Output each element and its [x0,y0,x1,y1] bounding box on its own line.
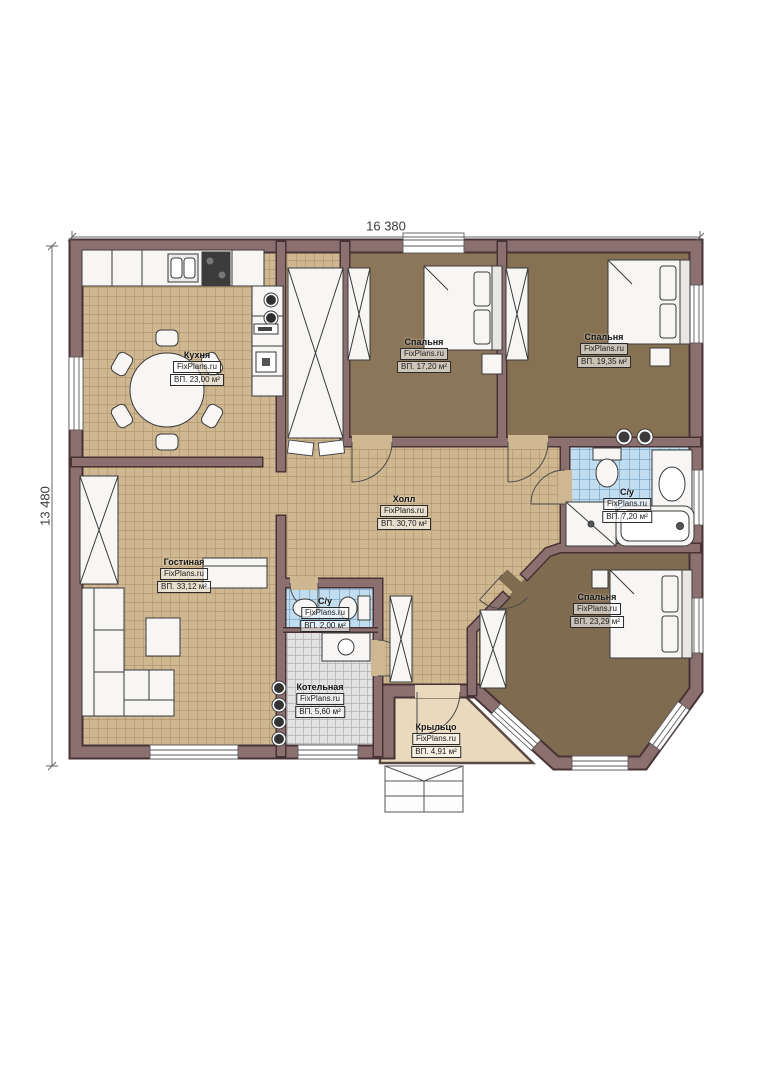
room-name: Спальня [578,592,617,602]
watermark-box: FixPlans.ru [296,693,344,705]
room-label-hall: Холл FixPlans.ru ВП. 30,70 м² [377,494,431,530]
room-label-bedroom3: Спальня FixPlans.ru ВП. 23,29 м² [570,592,624,628]
hall-wardrobe [288,268,343,438]
stove-icon [202,252,230,286]
floor-plan-drawing [0,0,763,1080]
window-top [403,233,464,253]
room-name: Кухня [184,350,210,360]
room-area: ВП. 4,91 м² [411,746,461,758]
window-bay-bottom [572,756,628,770]
room-name: С/у [318,596,332,606]
room-label-bedroom1: Спальня FixPlans.ru ВП. 17,20 м² [397,337,451,373]
watermark-box: FixPlans.ru [173,361,221,373]
room-label-bedroom2: Спальня FixPlans.ru ВП. 19,35 м² [577,332,631,368]
room-area: ВП. 30,70 м² [377,518,431,530]
window-living-bottom [150,745,238,759]
room-label-bathroom-main: С/у FixPlans.ru ВП. 7,20 м² [602,487,652,523]
room-label-porch: Крыльцо FixPlans.ru ВП. 4,91 м² [411,722,461,758]
room-name: Спальня [405,337,444,347]
watermark-box: FixPlans.ru [380,505,428,517]
room-area: ВП. 23,29 м² [570,616,624,628]
room-area: ВП. 7,20 м² [602,511,652,523]
dimension-width-label: 16 380 [366,219,406,234]
coffee-table [146,618,180,656]
window-bedroom2-right [689,285,703,343]
room-area: ВП. 23,00 м² [170,374,224,386]
room-name: Котельная [296,682,343,692]
watermark-box: FixPlans.ru [412,733,460,745]
room-area: ВП. 5,60 м² [295,706,345,718]
watermark-box: FixPlans.ru [603,498,651,510]
watermark-box: FixPlans.ru [573,603,621,615]
watermark-box: FixPlans.ru [160,568,208,580]
hall-cabinet [390,596,412,682]
room-name: Спальня [585,332,624,342]
sink-icon [168,254,198,282]
room-label-living: Гостиная FixPlans.ru ВП. 33,12 м² [157,557,211,593]
room-label-bathroom-small: С/у FixPlans.ru ВП. 2,00 м² [300,596,350,632]
room-name: Гостиная [164,557,205,567]
kitchen-counter [82,250,264,286]
room-label-boiler: Котельная FixPlans.ru ВП. 5,60 м² [295,682,345,718]
dimension-height-label: 13 480 [38,486,53,526]
room-area: ВП. 17,20 м² [397,361,451,373]
watermark-box: FixPlans.ru [301,607,349,619]
entrance-steps [385,766,463,812]
window-kitchen-left [69,357,83,430]
room-area: ВП. 19,35 м² [577,356,631,368]
room-name: Крыльцо [416,722,457,732]
watermark-box: FixPlans.ru [400,348,448,360]
room-area: ВП. 33,12 м² [157,581,211,593]
room-area: ВП. 2,00 м² [300,620,350,632]
room-name: С/у [620,487,634,497]
kitchen-side-counter [252,286,283,396]
bedroom1-wardrobe [348,268,370,360]
room-label-kitchen: Кухня FixPlans.ru ВП. 23,00 м² [170,350,224,386]
living-wardrobe [80,476,118,584]
bedroom3-wardrobe [480,610,506,688]
room-name: Холл [393,494,416,504]
floor-plan-page: { "meta": { "watermark": "FixPlans.ru" }… [0,0,763,1080]
watermark-box: FixPlans.ru [580,343,628,355]
window-boiler-bottom [298,745,358,759]
tv-console [203,558,267,588]
bedroom2-wardrobe [506,268,528,360]
boiler-equipment [322,633,370,661]
